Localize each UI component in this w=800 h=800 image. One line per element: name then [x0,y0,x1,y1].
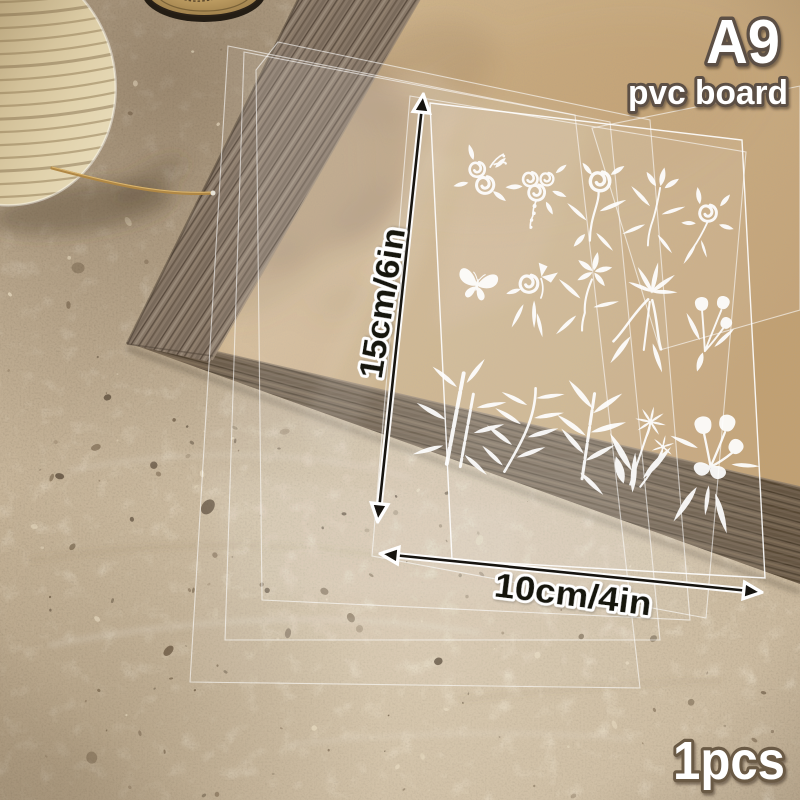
size-badge: A9 [706,8,780,77]
vignette [0,0,800,800]
product-type-label: pvc board [628,74,788,112]
quantity-label: 1pcs [673,731,785,791]
scene-canvas: A9 pvc board 15cm/6in 10cm/4in 1pcs [0,0,800,800]
product-photo: A9 pvc board 15cm/6in 10cm/4in 1pcs [0,0,800,800]
